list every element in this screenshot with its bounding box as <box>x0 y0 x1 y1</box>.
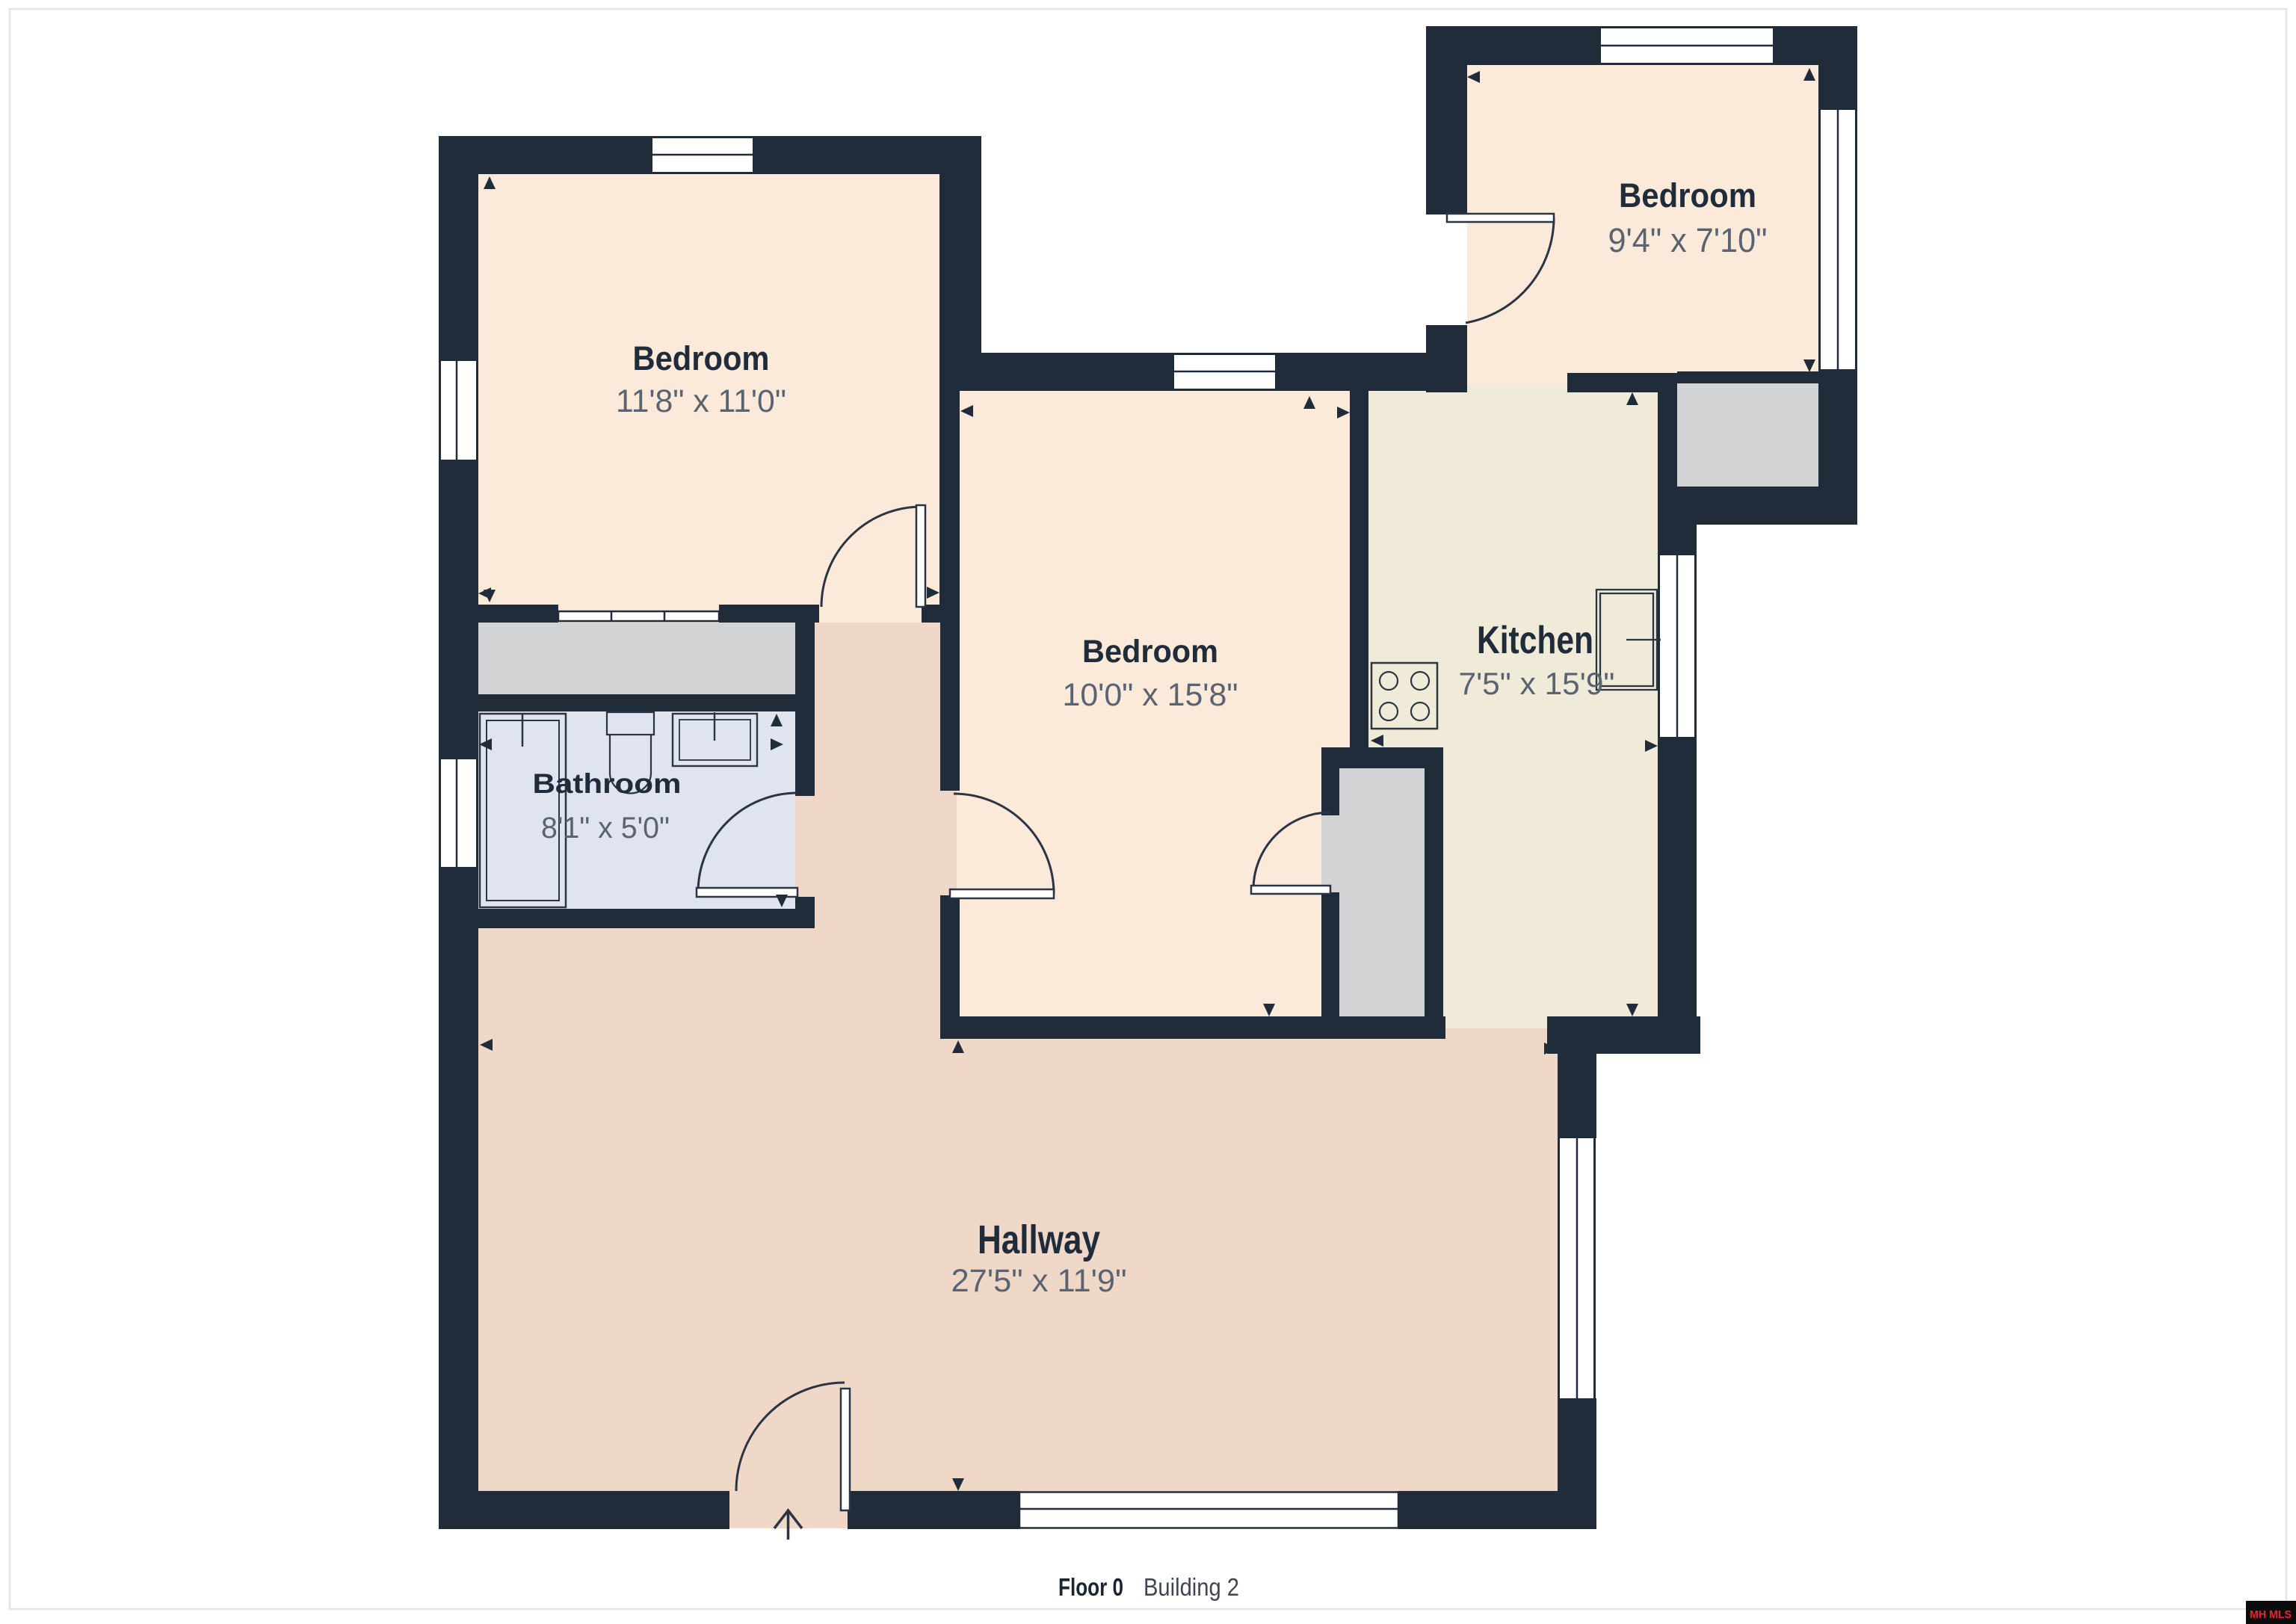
svg-text:11'8" x 11'0": 11'8" x 11'0" <box>616 383 786 419</box>
svg-text:Hallway: Hallway <box>978 1217 1100 1262</box>
svg-text:9'4" x 7'10": 9'4" x 7'10" <box>1608 221 1768 259</box>
svg-text:27'5" x 11'9": 27'5" x 11'9" <box>951 1263 1127 1299</box>
svg-text:Bedroom: Bedroom <box>1082 634 1218 670</box>
svg-text:8'1" x 5'0": 8'1" x 5'0" <box>541 812 670 845</box>
svg-text:Floor 0: Floor 0 <box>1058 1573 1123 1601</box>
svg-text:Building 2: Building 2 <box>1144 1573 1239 1601</box>
svg-text:Kitchen: Kitchen <box>1477 619 1593 662</box>
svg-text:Bathroom: Bathroom <box>533 768 682 799</box>
svg-text:Bedroom: Bedroom <box>633 339 770 377</box>
svg-text:7'5" x 15'9": 7'5" x 15'9" <box>1459 666 1615 701</box>
svg-text:10'0" x 15'8": 10'0" x 15'8" <box>1063 677 1238 713</box>
svg-text:Bedroom: Bedroom <box>1619 176 1756 214</box>
svg-text:MH MLS: MH MLS <box>2250 1608 2292 1621</box>
